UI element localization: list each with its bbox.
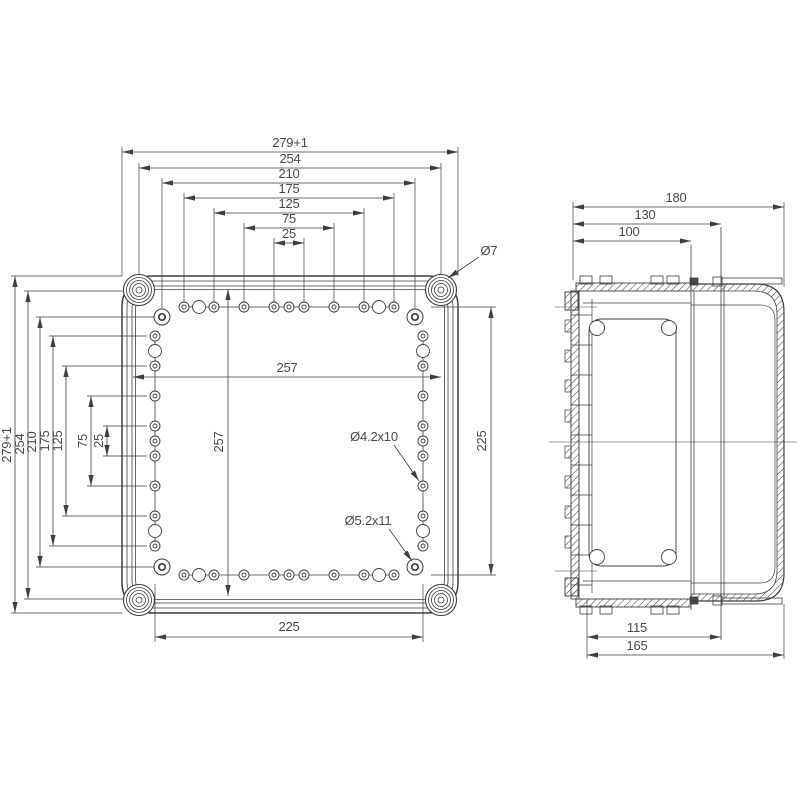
corner-screw-tower (426, 585, 457, 616)
leader-small-hole (394, 445, 419, 481)
dim-width-175: 175 (278, 181, 299, 196)
recess-boss-hole (662, 321, 677, 336)
knockout-hole (149, 345, 162, 358)
small-hole (150, 451, 160, 461)
base-top-boss (565, 292, 578, 310)
seal-groove-outer (132, 286, 448, 603)
small-hole (150, 511, 160, 521)
small-hole (150, 436, 160, 446)
small-hole (418, 481, 428, 491)
recess-boss-hole (590, 321, 605, 336)
knockout-hole (417, 525, 430, 538)
dim-inner-width: 257 (276, 360, 297, 375)
corner-hole (407, 309, 423, 325)
mounting-holes (124, 275, 457, 616)
flange-tab (565, 506, 571, 518)
recess-boss-hole (590, 550, 605, 565)
knockout-hole (193, 301, 206, 314)
dim-width-25: 25 (282, 226, 296, 241)
small-hole (359, 570, 369, 580)
side-dimension-lines (573, 207, 784, 655)
knockout-hole (373, 301, 386, 314)
base-bottom-boss (565, 578, 578, 596)
base-left-wall (571, 291, 579, 599)
small-hole (389, 570, 399, 580)
corner-hole (154, 559, 170, 575)
small-hole (239, 302, 249, 312)
label-small-hole-spec: Ø4.2x10 (350, 429, 398, 444)
dim-depth-165: 165 (626, 638, 647, 653)
small-hole (209, 570, 219, 580)
small-hole (284, 570, 294, 580)
small-hole (179, 570, 189, 580)
corner-screw-tower (426, 275, 457, 306)
dim-width-210: 210 (278, 166, 299, 181)
front-view (11, 147, 496, 642)
small-hole (359, 302, 369, 312)
small-hole (150, 331, 160, 341)
flange-tab (565, 350, 571, 362)
small-hole (418, 451, 428, 461)
small-hole (299, 570, 309, 580)
corner-screw-tower (124, 585, 155, 616)
technical-drawing-page: 279+1 254 210 175 125 75 25 279+1 254 21… (0, 0, 800, 800)
dim-height-125: 125 (50, 430, 65, 451)
inner-recess (589, 319, 676, 566)
dim-width-75: 75 (282, 211, 296, 226)
flange-tab (565, 476, 571, 488)
dim-depth-100: 100 (618, 224, 639, 239)
side-view (549, 202, 797, 659)
knockout-hole (373, 569, 386, 582)
flange-tab (565, 410, 571, 422)
small-hole (418, 391, 428, 401)
small-hole (150, 421, 160, 431)
small-hole (150, 541, 160, 551)
knockout-hole (193, 569, 206, 582)
label-corner-hole-spec: Ø5.2x11 (345, 513, 392, 528)
cover-wall-hatch (691, 284, 784, 601)
cover-outer-edge (691, 284, 784, 601)
knockout-hole (417, 345, 430, 358)
knockout-hole (149, 525, 162, 538)
small-hole (269, 302, 279, 312)
small-hole (150, 391, 160, 401)
cover-wall-inner-edge (691, 291, 777, 594)
dim-height-25: 25 (91, 434, 106, 448)
small-hole (418, 511, 428, 521)
small-hole (269, 570, 279, 580)
dim-depth-130: 130 (634, 207, 655, 222)
recess-boss-hole (662, 550, 677, 565)
dim-inner-height: 257 (211, 431, 226, 452)
small-hole (329, 302, 339, 312)
dim-width-254: 254 (279, 151, 300, 166)
small-hole (299, 302, 309, 312)
flange-tab (565, 320, 571, 332)
small-hole (418, 436, 428, 446)
small-hole (209, 302, 219, 312)
small-hole (150, 361, 160, 371)
corner-screw-tower (124, 275, 155, 306)
dim-depth-180: 180 (665, 190, 686, 205)
dim-depth-115: 115 (627, 620, 647, 635)
flange-tab (565, 536, 571, 548)
small-hole (239, 570, 249, 580)
flange-tab (565, 446, 571, 458)
dim-hole-span-width: 225 (278, 619, 299, 634)
label-corner-screw-dia: Ø7 (481, 243, 498, 258)
enclosure-drawing: 279+1 254 210 175 125 75 25 279+1 254 21… (0, 0, 800, 800)
enclosure-inner-wall (127, 281, 453, 608)
small-hole (329, 570, 339, 580)
small-hole (389, 302, 399, 312)
leader-corner-hole (389, 529, 412, 561)
side-extension-lines (573, 202, 784, 659)
centerline (549, 307, 797, 571)
small-hole (284, 302, 294, 312)
dim-height-75: 75 (75, 434, 90, 448)
dim-width-overall: 279+1 (272, 135, 308, 150)
enclosure-outer-edge (122, 276, 458, 613)
rim-clamps (580, 276, 782, 614)
corner-hole (154, 309, 170, 325)
small-hole (150, 481, 160, 491)
dim-hole-span-height: 225 (474, 430, 489, 451)
leader-corner-screw (448, 257, 479, 278)
cover-inner-surface (691, 305, 775, 583)
flange-tab (565, 380, 571, 392)
small-hole (418, 331, 428, 341)
small-hole (418, 421, 428, 431)
small-hole (179, 302, 189, 312)
small-hole (418, 541, 428, 551)
dim-width-125: 125 (278, 196, 299, 211)
small-hole (418, 361, 428, 371)
corner-hole (407, 559, 423, 575)
seal-groove-inner (136, 290, 445, 600)
recess-screw-bosses (590, 321, 677, 565)
